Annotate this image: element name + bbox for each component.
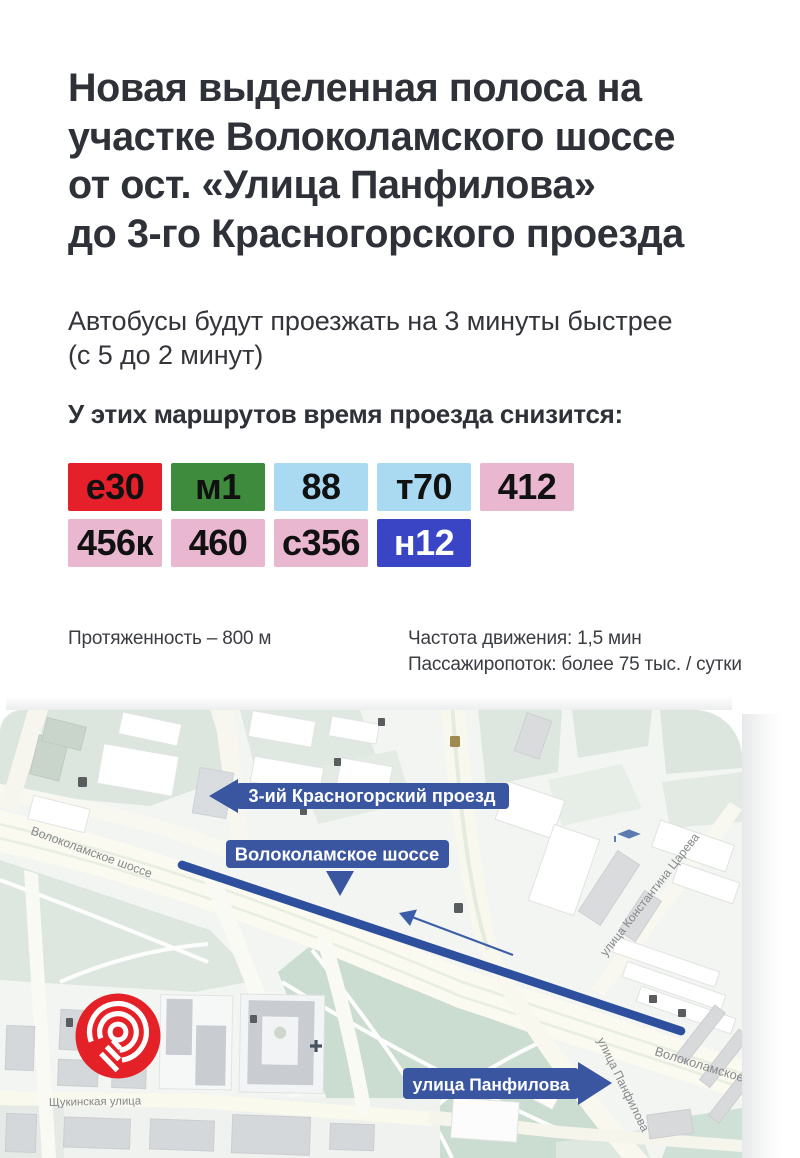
svg-text:Щукинская улица: Щукинская улица bbox=[49, 1095, 142, 1109]
svg-text:улица Панфилова: улица Панфилова bbox=[413, 1075, 570, 1095]
svg-text:3-ий Красногорский проезд: 3-ий Красногорский проезд bbox=[249, 786, 496, 806]
svg-text:Волоколамское шоссе: Волоколамское шоссе bbox=[235, 844, 440, 865]
